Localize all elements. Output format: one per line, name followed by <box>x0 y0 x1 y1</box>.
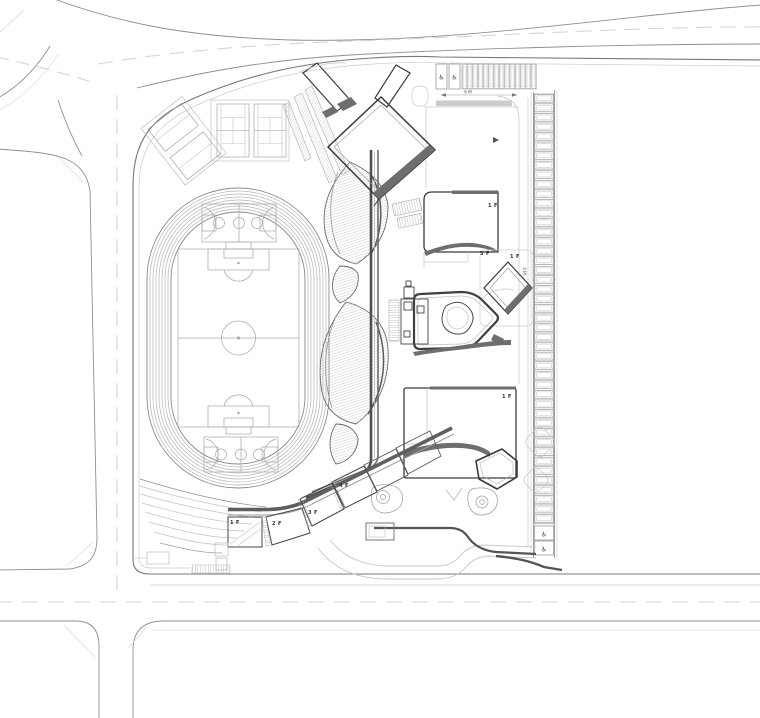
tree-cluster <box>372 485 498 515</box>
zebra-crossing <box>192 565 230 573</box>
soccer-field <box>178 242 299 434</box>
west-city-block <box>0 149 97 570</box>
southwest-city-block <box>0 621 99 718</box>
north-parking-dimension: 6 M <box>441 90 517 97</box>
tennis-court-right <box>254 104 286 157</box>
accessible-parking-icon: ♿ <box>541 531 547 539</box>
top-road-south-edge <box>137 44 760 88</box>
building-outline <box>424 192 498 252</box>
floor-label: 1 F <box>230 520 240 526</box>
east-parking-dimension: 4 M <box>522 267 527 275</box>
section-marker-icon <box>493 137 499 143</box>
basketball-court-north <box>202 204 276 242</box>
leaf-canopy-4 <box>330 424 358 464</box>
stair-hatch <box>389 300 399 341</box>
site-plan-canvas: ♿ ♿ 6 M ♿ ♿ 4 M <box>0 0 760 718</box>
site-boundary <box>133 56 760 585</box>
north-parking-stalls <box>462 64 536 89</box>
site-boundary-inner <box>139 62 760 568</box>
building-outline <box>404 388 516 478</box>
floor-label: 4 F <box>339 483 349 489</box>
top-road-centerline <box>98 27 760 64</box>
northeast-wing <box>375 65 410 107</box>
diamond-building <box>480 137 533 326</box>
southwest-stepped-wing <box>133 428 454 573</box>
tennis-court-left <box>217 104 249 157</box>
accessible-parking-icon: ♿ <box>541 546 547 554</box>
building-outline <box>414 292 498 349</box>
site-plan-drawing: ♿ ♿ 6 M ♿ ♿ 4 M <box>0 0 760 718</box>
north-parking-row: ♿ ♿ 6 M <box>436 64 536 106</box>
southeast-city-block <box>128 621 760 718</box>
floor-label: 3 F <box>308 510 318 516</box>
west-road-upper-edge <box>58 100 82 156</box>
floor-label: 5 F <box>480 251 490 257</box>
north-goal <box>226 242 251 249</box>
west-annex-building <box>389 281 428 344</box>
top-road-north-edge <box>46 0 760 40</box>
canopy-band <box>436 101 512 107</box>
dimension-label: 4 M <box>522 267 527 275</box>
east-parking-stalls <box>535 94 554 524</box>
south-goal <box>226 427 251 434</box>
northwest-branch-centerline <box>0 57 98 84</box>
entry-stairs <box>392 198 425 228</box>
tennis-courts <box>141 96 289 185</box>
main-walk <box>374 528 536 554</box>
leaf-canopy-2 <box>333 266 359 303</box>
accessible-parking-icon: ♿ <box>439 74 445 82</box>
east-parking-column: ♿ ♿ 4 M <box>522 90 557 560</box>
northwest-corner-island <box>0 10 58 112</box>
floor-label: 1 F <box>502 394 512 400</box>
landscape-contours <box>140 479 266 553</box>
tilted-courts <box>141 96 226 185</box>
floor-label: 1 F <box>510 254 520 260</box>
floor-label: 1 F <box>488 203 498 209</box>
floor-label: 2 F <box>272 521 282 527</box>
accessible-parking-icon: ♿ <box>452 74 458 82</box>
roof-band <box>452 191 498 195</box>
roof-band <box>430 387 516 390</box>
site-boundary-outer <box>133 56 760 574</box>
dimension-label: 6 M <box>464 90 472 95</box>
south-paths <box>318 523 562 579</box>
